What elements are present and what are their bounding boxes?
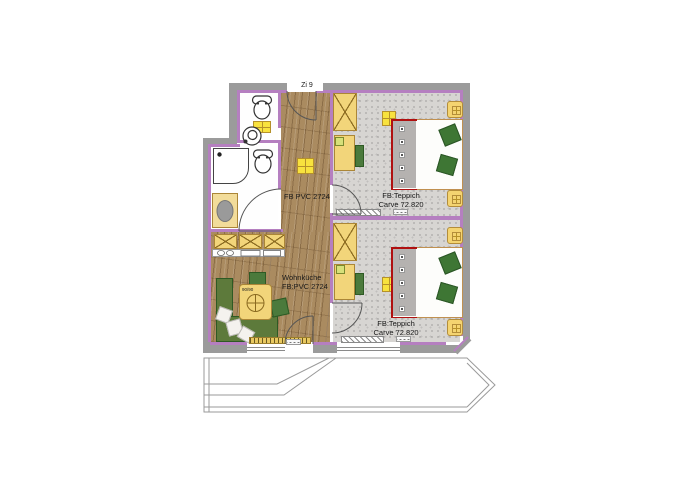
wall-segment <box>316 83 470 90</box>
kitchen-label: Wohnküche FB:PVC 2724 <box>282 274 328 291</box>
bed-detail <box>399 165 405 171</box>
kitchen-cabinet-icon <box>214 234 237 249</box>
wall-segment <box>313 345 337 353</box>
desk-item-icon <box>335 137 344 146</box>
wall-line <box>210 342 247 345</box>
bedroom1-label: FB:Teppich Carve 72.820 <box>374 192 428 209</box>
wall-segment <box>463 83 470 340</box>
table-size-label: 90/90 <box>242 286 253 295</box>
wall-line <box>208 144 211 342</box>
vent-icon <box>286 339 301 345</box>
bed-detail <box>399 280 405 286</box>
wall-line-bath-partition <box>278 140 281 189</box>
wall-line-bath-bottom <box>210 229 283 232</box>
wall-segment <box>400 345 463 353</box>
nightstand-icon <box>447 319 463 336</box>
wall-line-bedroom-divider <box>330 216 460 220</box>
wall-line-wc-partition <box>278 90 281 128</box>
kitchen-counter <box>212 249 285 257</box>
nightstand-icon <box>447 227 463 244</box>
bed-detail <box>399 178 405 184</box>
bed-detail <box>399 254 405 260</box>
chair-icon <box>355 273 364 295</box>
radiator-icon <box>341 336 384 343</box>
bed-accent <box>391 119 393 190</box>
nightstand-icon <box>447 101 463 118</box>
bed-accent <box>391 317 417 319</box>
washing-machine-icon <box>212 193 238 228</box>
wardrobe-icon <box>333 93 357 131</box>
radiator-icon <box>249 337 311 344</box>
chair-icon <box>269 297 289 317</box>
bed-detail <box>399 293 405 299</box>
bed-detail <box>399 267 405 273</box>
nightstand-icon <box>447 190 463 207</box>
balcony-outline <box>204 358 495 412</box>
radiator-icon <box>336 209 381 216</box>
wall-line <box>313 342 337 345</box>
wardrobe-icon <box>333 223 357 261</box>
chair-icon <box>355 145 364 167</box>
vent-icon <box>393 209 408 215</box>
bed-detail <box>399 126 405 132</box>
ceiling-light-icon <box>253 121 271 133</box>
bed-detail <box>399 306 405 312</box>
wall-line <box>208 144 240 147</box>
wall-line <box>237 140 281 143</box>
bed-accent <box>391 119 417 121</box>
wall-segment <box>229 83 237 143</box>
wall-line <box>237 90 240 140</box>
kitchen-cabinet-icon <box>264 234 285 249</box>
bed-detail <box>399 139 405 145</box>
bed-accent <box>391 189 417 191</box>
room-number-label: Zi 9 <box>291 82 323 91</box>
bed-accent <box>391 247 393 318</box>
shower-icon <box>213 148 249 184</box>
wall-line <box>400 342 446 345</box>
floor-plan: FB PVC 2724 90/90 Wohnküche FB:PVC 2724 … <box>0 0 700 500</box>
kitchen-cabinet-icon <box>239 234 262 249</box>
hall-floor-label: FB PVC 2724 <box>284 193 330 202</box>
ceiling-light-icon <box>297 158 314 174</box>
bedroom1-floor-label-2: Carve 72.820 <box>374 201 428 210</box>
kitchen-floor-label: FB:PVC 2724 <box>282 283 328 292</box>
bed-detail <box>399 152 405 158</box>
bed-accent <box>391 247 417 249</box>
desk-item-icon <box>336 265 345 274</box>
bedroom2-floor-label-2: Carve 72.820 <box>369 329 423 338</box>
wall-segment <box>233 83 287 90</box>
bedroom2-label: FB:Teppich Carve 72.820 <box>369 320 423 337</box>
